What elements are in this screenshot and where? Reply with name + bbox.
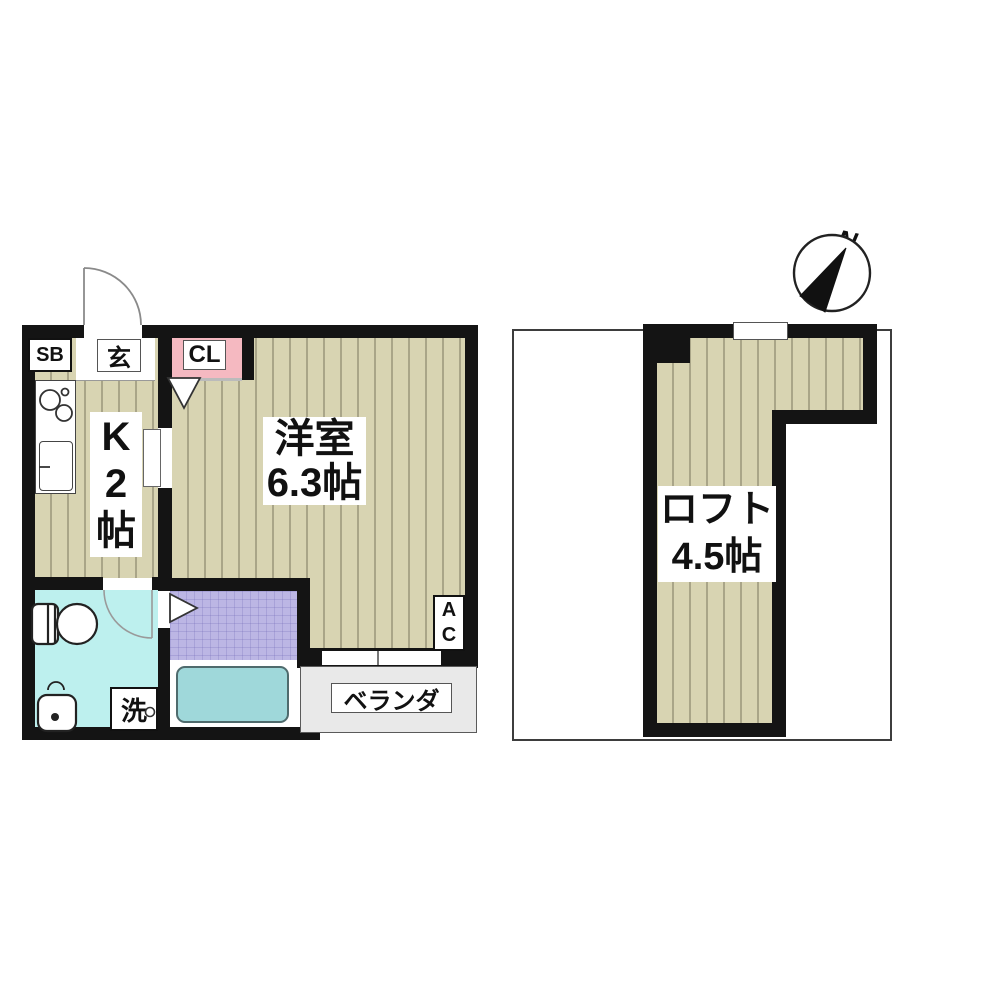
washing-machine-label: 洗	[110, 687, 158, 731]
wall	[297, 648, 322, 668]
entrance-label: 玄	[97, 339, 141, 372]
loft-opening	[733, 322, 788, 340]
kitchen-label: K 2 帖	[90, 412, 142, 557]
compass-needle-icon	[800, 248, 846, 312]
wall	[643, 324, 690, 363]
wall	[142, 325, 478, 338]
wall	[441, 648, 478, 668]
wall	[643, 723, 786, 737]
wall	[643, 324, 657, 737]
wall	[158, 488, 172, 590]
veranda-label: ベランダ	[331, 683, 452, 713]
compass-north-label: N	[834, 224, 860, 258]
wall	[465, 325, 478, 668]
bathroom-floor	[170, 591, 297, 660]
window	[322, 648, 441, 668]
loft-label: ロフト 4.5帖	[658, 486, 776, 582]
compass-circle	[794, 235, 870, 311]
wall	[242, 332, 254, 380]
floor-plan-canvas: SB 玄 CL K 2 帖 洋室 6.3帖 A C 洗 ベランダ ロフト 4.5…	[0, 0, 1000, 1001]
living-room-label: 洋室 6.3帖	[263, 417, 366, 505]
kitchen-sink	[39, 441, 73, 491]
wall	[772, 410, 877, 424]
wall	[158, 578, 310, 591]
wall	[158, 332, 172, 428]
compass	[794, 235, 870, 312]
wall	[158, 628, 170, 727]
bathtub	[176, 666, 289, 723]
wall	[22, 325, 35, 740]
kitchen-sliding-door	[143, 429, 161, 487]
wall	[863, 324, 877, 424]
ac-unit-label: A C	[433, 595, 465, 651]
closet-label: CL	[183, 340, 226, 370]
entrance-door-arc	[84, 268, 141, 325]
shoebox-label: SB	[28, 338, 72, 372]
wall	[22, 577, 103, 590]
window-sash-line	[377, 651, 379, 665]
wall	[22, 727, 320, 740]
